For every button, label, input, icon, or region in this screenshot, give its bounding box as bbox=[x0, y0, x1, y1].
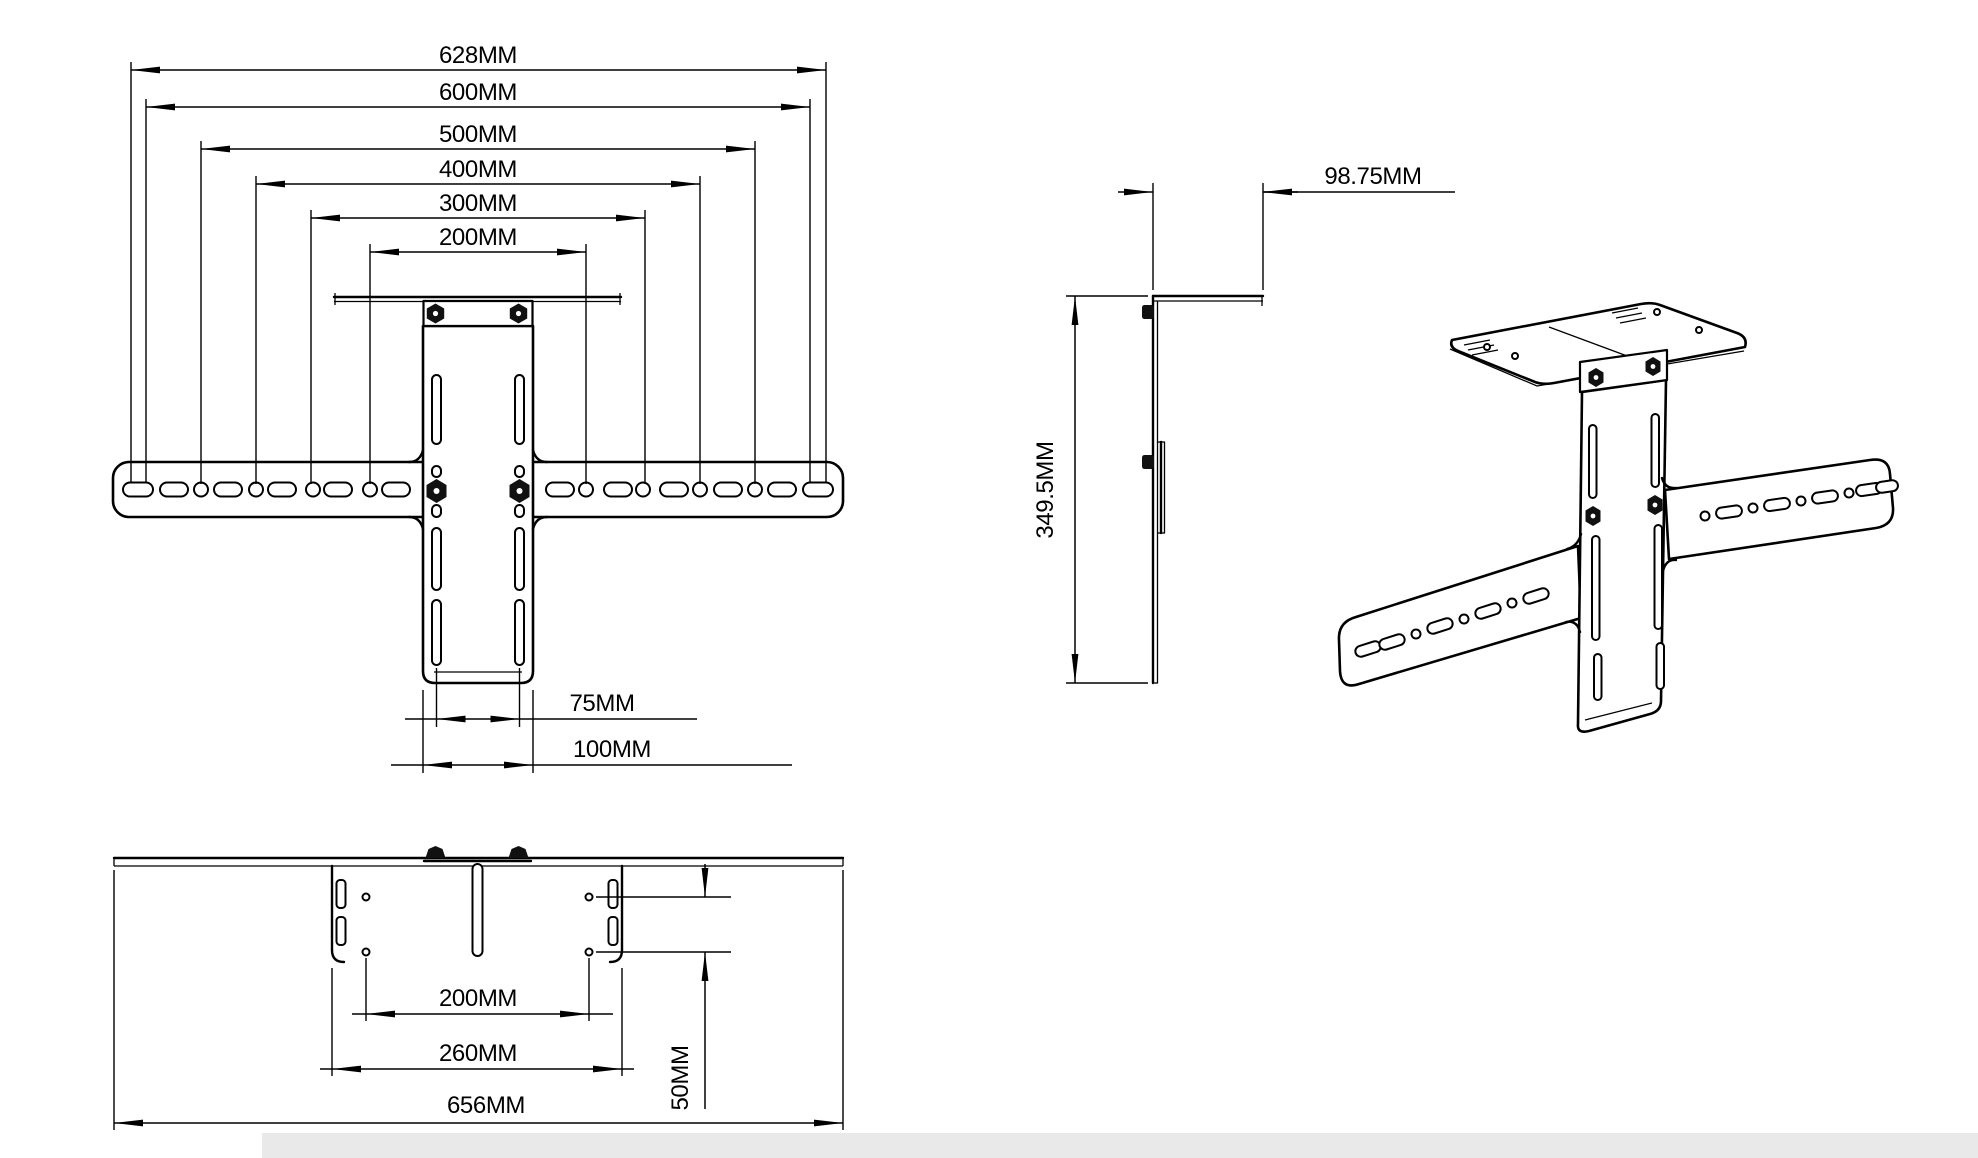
dimension-label: 50MM bbox=[667, 1045, 694, 1110]
dimension-98-75mm: 98.75MM bbox=[1118, 163, 1455, 290]
bottom-view: 50MM 200MM 260MM 656MM bbox=[114, 846, 843, 1130]
dimension-label: 300MM bbox=[439, 190, 517, 217]
dimension-label: 260MM bbox=[439, 1040, 517, 1067]
front-clamp-bracket bbox=[424, 301, 533, 326]
dimension-349-5mm: 349.5MM bbox=[1032, 296, 1148, 683]
dimension-label: 656MM bbox=[447, 1092, 525, 1119]
dimension-200mm-bottom: 200MM bbox=[352, 958, 613, 1021]
side-bar-section bbox=[1158, 442, 1165, 533]
front-strap bbox=[409, 326, 547, 683]
iso-left-arm bbox=[1339, 546, 1581, 685]
iso-right-arm bbox=[1665, 460, 1899, 559]
dimension-label: 628MM bbox=[439, 42, 517, 69]
iso-strap bbox=[1566, 380, 1676, 732]
technical-drawing: 628MM 600MM 500MM 400MM bbox=[0, 0, 1978, 1158]
dimension-label: 75MM bbox=[569, 690, 634, 717]
dimension-label: 200MM bbox=[439, 224, 517, 251]
dimension-label: 349.5MM bbox=[1032, 441, 1059, 538]
dimension-label: 600MM bbox=[439, 79, 517, 106]
dimension-label: 200MM bbox=[439, 985, 517, 1012]
isometric-view bbox=[1339, 303, 1899, 731]
front-view: 628MM 600MM 500MM 400MM bbox=[113, 42, 843, 773]
dimension-label: 400MM bbox=[439, 156, 517, 183]
dimension-label: 98.75MM bbox=[1324, 163, 1421, 190]
bottom-plate bbox=[332, 864, 622, 962]
drawing-page: 628MM 600MM 500MM 400MM bbox=[0, 0, 1978, 1158]
bottom-clamp-bolts bbox=[426, 846, 529, 858]
dimension-label: 100MM bbox=[573, 736, 651, 763]
dimension-label: 500MM bbox=[439, 121, 517, 148]
page-shadow-band bbox=[262, 1133, 1978, 1158]
